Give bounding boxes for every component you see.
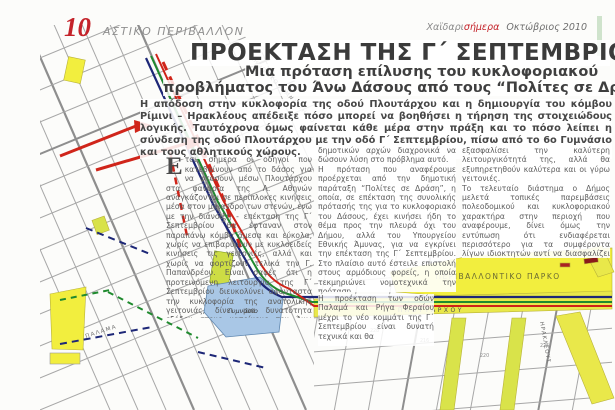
masthead: ΧαϊδαρισήμεραΟκτώβριος 2010 — [425, 22, 587, 33]
drop-cap: Ε — [166, 156, 183, 177]
irakleous-street-label: ΗΡΑΚΛΕΟΥΣ — [538, 321, 551, 364]
masthead-name-gray: Χαϊδαρι — [427, 22, 464, 33]
body-column-2b: Η προέκταση των οδών Παλαμά και Ρήγα Φερ… — [318, 294, 434, 346]
article-subhead-2: προβλήματος του Άνω Δάσους από τους “Πολ… — [163, 80, 611, 96]
body-column-3: εξασφαλίσει την καλύτερη λειτουργικότητά… — [462, 146, 610, 258]
block-number: 225 — [540, 343, 549, 349]
section-title: ΑΣΤΙΚΟ ΠΕΡΙΒΑΛΛΟΝ — [103, 25, 244, 38]
body-column-1-text: τσι, σήμερα οι οδηγοί που κατεβαίνουν απ… — [166, 155, 312, 318]
block-number: 220 — [480, 353, 489, 359]
small-park-wedge — [50, 287, 86, 350]
page-number: 10 — [64, 14, 91, 41]
yellow-street-1 — [440, 318, 466, 410]
masthead-name-red: σήμερα — [464, 22, 500, 33]
small-yellow-label-box — [50, 353, 80, 364]
article-subhead-1: Μια πρόταση επίλυσης του κυκλοφοριακού — [245, 64, 575, 80]
yellow-street-2 — [500, 318, 526, 410]
yellow-building — [64, 57, 86, 84]
dark-red-mark-2 — [560, 263, 570, 267]
body-column-2: δημοτικών αρχών διαχρονικά να δώσουν λύσ… — [318, 146, 456, 292]
article-headline: ΠΡΟΕΚΤΑΣΗ ΤΗΣ Γ΄ ΣΕΠΤΕΜΒΡΙΟΥ — [190, 40, 610, 66]
yellow-street-3 — [556, 312, 614, 404]
masthead-issue-date: Οκτώβριος 2010 — [506, 22, 587, 33]
small-green-block — [92, 216, 109, 235]
newspaper-page: ΠΕΡΙΒΑΛΛΟΝΤΙΚΟ ΠΑΡΚΟ ΠΛΟΥΤΑΡΧΟΥ Γυμνάσιο… — [0, 0, 615, 410]
body-column-1: Ετσι, σήμερα οι οδηγοί που κατεβαίνουν α… — [166, 146, 312, 318]
